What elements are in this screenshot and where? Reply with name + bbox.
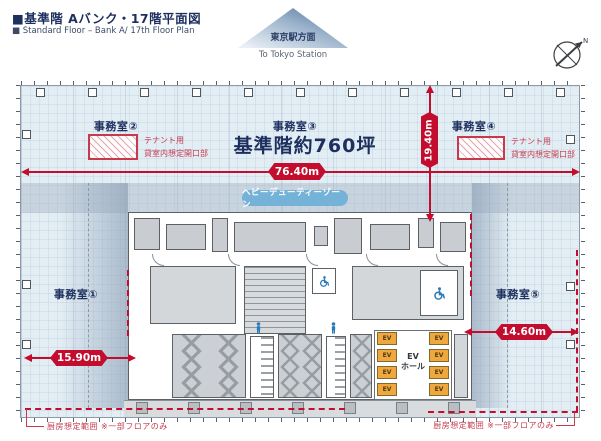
toilet-stalls xyxy=(250,336,274,398)
ev-label: EV xyxy=(435,335,444,342)
elevator-shaft-block xyxy=(172,334,246,398)
arrow-right-icon xyxy=(571,328,579,336)
kitchen-note-left: 厨房想定範囲 ※一部フロアのみ xyxy=(47,421,168,432)
column xyxy=(400,88,409,97)
elevator-car: EV xyxy=(429,383,449,396)
kitchen-leader xyxy=(26,426,44,427)
column xyxy=(140,88,149,97)
kitchen-leader xyxy=(574,412,575,426)
ev-label: EV xyxy=(383,352,392,359)
column xyxy=(344,402,356,414)
column xyxy=(556,88,565,97)
person-icon xyxy=(329,322,338,334)
floor-plan-page: ■基準階 Aバンク・17階平面図 ■ Standard Floor – Bank… xyxy=(0,0,601,441)
kitchen-range-dashed xyxy=(25,408,345,410)
core-room xyxy=(166,224,206,250)
compass-north-icon: N xyxy=(548,34,592,74)
column xyxy=(566,282,575,291)
direction-label-en: To Tokyo Station xyxy=(238,50,348,60)
core-room xyxy=(454,334,468,398)
core-room xyxy=(150,266,236,324)
column xyxy=(22,280,31,289)
column xyxy=(22,340,31,349)
core-room xyxy=(134,218,160,250)
core-room xyxy=(370,224,410,250)
arrow-left-icon xyxy=(21,168,29,176)
grid-ticks-left xyxy=(16,85,20,418)
ev-label: EV xyxy=(383,335,392,342)
elevator-shaft-block xyxy=(278,334,322,398)
core-room xyxy=(334,218,362,254)
ev-hall-label: EV ホール xyxy=(398,352,428,372)
accessible-toilet xyxy=(312,268,336,294)
wheelchair-icon xyxy=(319,276,330,287)
dimension-depth-badge: 19.40m xyxy=(421,112,438,168)
core-room xyxy=(212,218,228,252)
column xyxy=(192,88,201,97)
tenant-note-line2: 貸室内想定開口部 xyxy=(144,149,208,158)
tenant-note-line1: テナント用 xyxy=(511,137,551,146)
elevator-car: EV xyxy=(429,366,449,379)
dimension-width-badge: 76.40m xyxy=(268,163,326,180)
toilet-stalls xyxy=(326,336,346,398)
ev-label: EV xyxy=(435,386,444,393)
depth-value: 19.40m xyxy=(424,119,435,161)
column xyxy=(22,130,31,139)
ev-hall-line1: EV xyxy=(407,352,419,361)
core-room xyxy=(314,226,328,246)
column xyxy=(348,88,357,97)
ev-hall-line2: ホール xyxy=(401,362,425,371)
arrow-left-icon xyxy=(464,328,472,336)
dimension-right-span-badge: 14.60m xyxy=(495,324,553,340)
column xyxy=(452,88,461,97)
core-room xyxy=(440,222,466,252)
elevator-car: EV xyxy=(429,332,449,345)
page-subtitle: ■ Standard Floor – Bank A/ 17th Floor Pl… xyxy=(12,26,195,36)
column xyxy=(244,88,253,97)
tenant-opening-note: テナント用 貸室内想定開口部 xyxy=(511,135,601,161)
core-room xyxy=(234,222,306,252)
grid-ticks-top xyxy=(21,81,579,85)
column xyxy=(36,88,45,97)
column xyxy=(396,402,408,414)
accessible-toilet xyxy=(420,270,458,316)
kitchen-leader xyxy=(26,409,27,426)
office-1-label: 事務室① xyxy=(34,286,118,302)
tenant-opening-hatch xyxy=(88,134,138,160)
column xyxy=(296,88,305,97)
elevator-car: EV xyxy=(377,366,397,379)
elevator-car: EV xyxy=(377,332,397,345)
ev-label: EV xyxy=(383,369,392,376)
page-title: ■基準階 Aバンク・17階平面図 xyxy=(12,8,201,27)
tenant-opening-note: テナント用 貸室内想定開口部 xyxy=(144,134,239,160)
lease-boundary-dashed xyxy=(127,270,129,336)
column xyxy=(566,340,575,349)
arrow-left-icon xyxy=(24,354,32,362)
kitchen-range-dashed xyxy=(428,411,578,413)
office-2-label: 事務室② xyxy=(74,118,158,134)
person-icon xyxy=(254,322,263,334)
ev-label: EV xyxy=(435,369,444,376)
kitchen-leader xyxy=(556,425,574,426)
core-room xyxy=(418,218,434,248)
lease-boundary-dashed xyxy=(470,214,472,296)
column xyxy=(88,88,97,97)
ev-label: EV xyxy=(435,352,444,359)
tenant-opening-hatch xyxy=(457,136,505,160)
arrow-right-icon xyxy=(572,168,580,176)
compass-n-label: N xyxy=(583,37,588,45)
heavy-duty-zone-badge: ヘビーデューティーゾーン xyxy=(242,190,348,206)
wheelchair-icon xyxy=(433,287,446,300)
kitchen-note-right: 厨房想定範囲 ※一部フロアのみ xyxy=(424,420,554,431)
ev-label: EV xyxy=(383,386,392,393)
arrow-right-icon xyxy=(128,354,136,362)
column xyxy=(504,88,513,97)
direction-label-jp: 東京駅方面 xyxy=(238,30,348,43)
office-4-label: 事務室④ xyxy=(432,118,516,134)
dimension-left-span-badge: 15.90m xyxy=(50,350,108,366)
arrow-up-icon xyxy=(426,85,434,93)
elevator-car: EV xyxy=(377,383,397,396)
office-5-label: 事務室⑤ xyxy=(476,286,560,302)
elevator-shaft-block xyxy=(350,334,372,398)
tenant-note-line2: 貸室内想定開口部 xyxy=(511,150,575,159)
elevator-car: EV xyxy=(377,349,397,362)
elevator-car: EV xyxy=(429,349,449,362)
tenant-note-line1: テナント用 xyxy=(144,136,184,145)
arrow-down-icon xyxy=(426,214,434,222)
